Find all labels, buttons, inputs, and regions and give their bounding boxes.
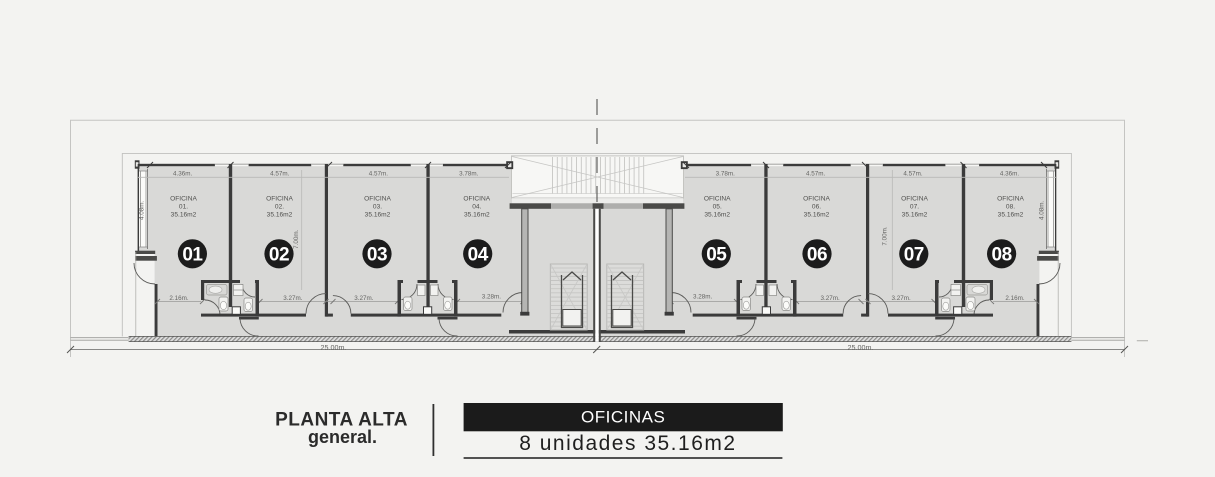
svg-text:01: 01 bbox=[182, 245, 203, 266]
svg-text:OFICINA: OFICINA bbox=[463, 196, 490, 203]
svg-text:35.16m2: 35.16m2 bbox=[804, 211, 830, 218]
svg-text:05: 05 bbox=[706, 245, 727, 266]
svg-text:4.57m.: 4.57m. bbox=[806, 171, 826, 178]
svg-text:3.28m.: 3.28m. bbox=[482, 294, 502, 301]
svg-text:4.36m.: 4.36m. bbox=[173, 171, 193, 178]
svg-text:3.27m.: 3.27m. bbox=[820, 295, 840, 302]
svg-text:02.: 02. bbox=[275, 204, 284, 211]
svg-text:OFICINA: OFICINA bbox=[997, 196, 1024, 203]
svg-text:35.16m2: 35.16m2 bbox=[902, 211, 928, 218]
svg-text:3.78m.: 3.78m. bbox=[716, 171, 736, 178]
svg-text:7.00m.: 7.00m. bbox=[882, 226, 889, 246]
svg-text:3.27m.: 3.27m. bbox=[354, 295, 374, 302]
svg-text:OFICINA: OFICINA bbox=[364, 196, 391, 203]
svg-text:06: 06 bbox=[807, 245, 827, 266]
svg-text:07.: 07. bbox=[910, 204, 919, 211]
svg-text:01.: 01. bbox=[179, 204, 188, 211]
svg-text:4.57m.: 4.57m. bbox=[369, 171, 389, 178]
svg-text:25.00m.: 25.00m. bbox=[848, 343, 874, 352]
svg-text:OFICINA: OFICINA bbox=[266, 196, 293, 203]
svg-text:3.28m.: 3.28m. bbox=[693, 294, 713, 301]
svg-text:35.16m2: 35.16m2 bbox=[171, 211, 197, 218]
svg-text:06.: 06. bbox=[812, 204, 821, 211]
svg-text:04: 04 bbox=[468, 245, 489, 266]
svg-text:4.57m.: 4.57m. bbox=[903, 171, 923, 178]
svg-text:OFICINA: OFICINA bbox=[704, 196, 731, 203]
svg-text:35.16m2: 35.16m2 bbox=[365, 211, 391, 218]
svg-text:03.: 03. bbox=[373, 204, 382, 211]
svg-text:35.16m2: 35.16m2 bbox=[998, 211, 1024, 218]
svg-text:OFICINAS: OFICINAS bbox=[581, 408, 665, 427]
svg-text:OFICINA: OFICINA bbox=[803, 196, 830, 203]
svg-text:02: 02 bbox=[269, 245, 289, 266]
svg-text:03: 03 bbox=[367, 245, 387, 266]
svg-text:4.08m.: 4.08m. bbox=[1039, 201, 1046, 221]
svg-text:2.16m.: 2.16m. bbox=[1005, 295, 1025, 302]
svg-text:OFICINA: OFICINA bbox=[901, 196, 928, 203]
svg-text:3.27m.: 3.27m. bbox=[891, 295, 911, 302]
svg-text:05.: 05. bbox=[713, 204, 722, 211]
svg-text:04.: 04. bbox=[472, 204, 481, 211]
svg-text:08: 08 bbox=[992, 245, 1012, 266]
svg-text:25.00m.: 25.00m. bbox=[321, 343, 347, 352]
svg-text:3.27m.: 3.27m. bbox=[283, 295, 303, 302]
svg-text:4.36m.: 4.36m. bbox=[1000, 171, 1020, 178]
svg-text:08.: 08. bbox=[1006, 204, 1015, 211]
svg-text:35.16m2: 35.16m2 bbox=[704, 211, 730, 218]
svg-text:4.08m.: 4.08m. bbox=[139, 201, 146, 221]
svg-text:35.16m2: 35.16m2 bbox=[464, 211, 490, 218]
svg-text:35.16m2: 35.16m2 bbox=[267, 211, 293, 218]
svg-text:2.16m.: 2.16m. bbox=[169, 295, 189, 302]
svg-text:general.: general. bbox=[308, 427, 377, 447]
svg-text:4.57m.: 4.57m. bbox=[270, 171, 290, 178]
svg-text:OFICINA: OFICINA bbox=[170, 196, 197, 203]
svg-text:3.78m.: 3.78m. bbox=[459, 171, 479, 178]
svg-text:07: 07 bbox=[904, 245, 924, 266]
svg-text:8 unidades 35.16m2: 8 unidades 35.16m2 bbox=[519, 432, 736, 455]
svg-text:7.00m.: 7.00m. bbox=[293, 229, 300, 249]
